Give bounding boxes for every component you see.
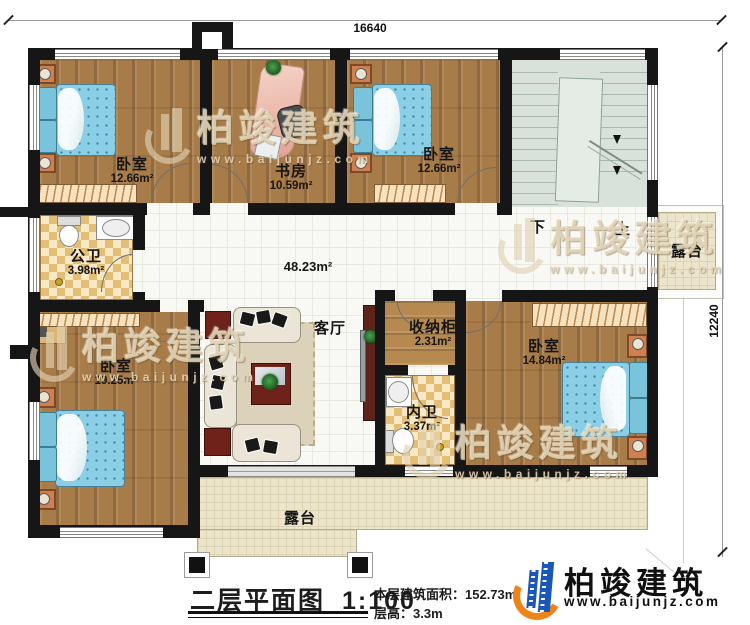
window xyxy=(29,218,40,292)
window xyxy=(560,49,645,60)
terrace-bottom-floor xyxy=(197,477,648,530)
room-label-ensuite-bath: 内卫 3.37m² xyxy=(382,404,462,434)
room-name: 卧室 xyxy=(76,358,156,375)
room-area: 3.98m² xyxy=(47,265,125,278)
plant-icon xyxy=(266,60,281,75)
hall-area-label: 48.23m² xyxy=(268,260,348,275)
window xyxy=(218,49,330,60)
window xyxy=(350,49,498,60)
window xyxy=(647,85,658,180)
wall xyxy=(375,290,385,465)
nightstand-icon xyxy=(350,153,372,173)
wall-stub xyxy=(10,345,28,359)
nightstand-icon xyxy=(627,334,648,358)
right-dimension-label: 12240 xyxy=(707,291,721,351)
room-label-public-bath: 公卫 3.98m² xyxy=(47,248,125,278)
window xyxy=(647,217,658,287)
side-table-icon xyxy=(205,311,231,339)
wall xyxy=(28,300,160,312)
room-label-bedroom-tl: 卧室 12.66m² xyxy=(92,156,172,186)
window xyxy=(60,527,163,538)
wall xyxy=(200,60,212,203)
bed-sheet xyxy=(374,88,400,150)
room-area: 10.59m² xyxy=(251,180,331,193)
top-dimension-label: 16640 xyxy=(340,21,400,35)
monitor-icon xyxy=(254,132,282,160)
floor-plan: 16640 12240 下 上 xyxy=(0,0,750,625)
stair-down-label: 下 xyxy=(530,216,545,237)
nightstand-icon xyxy=(627,436,648,460)
floor-drain-icon xyxy=(55,278,63,286)
plant-icon xyxy=(262,374,278,390)
room-area: 12.66m² xyxy=(399,163,479,176)
floor-height-text: 层高：3.3m xyxy=(374,603,443,622)
side-table-icon xyxy=(204,428,231,456)
chimney-flue xyxy=(202,32,222,49)
room-name: 卧室 xyxy=(92,156,172,173)
sofa-cushion xyxy=(208,394,224,411)
floor-area-text: 本层建筑面积：152.73m² xyxy=(374,584,521,603)
window xyxy=(590,466,627,477)
title-underline xyxy=(188,611,368,614)
terrace-bottom-floor-lower xyxy=(197,529,357,557)
wall xyxy=(133,203,145,250)
window xyxy=(29,402,40,460)
pillow-icon xyxy=(37,120,57,153)
wall xyxy=(335,60,347,203)
bed-sheet xyxy=(600,366,626,431)
pillow-icon xyxy=(629,362,649,398)
window xyxy=(55,49,180,60)
door-handle-icon xyxy=(436,443,444,451)
window xyxy=(405,466,453,476)
brand-url: www.baijunjz.com xyxy=(564,594,721,609)
frame-line xyxy=(683,297,684,563)
room-name: 书房 xyxy=(251,163,331,180)
wall xyxy=(502,290,658,302)
stair-up-label: 上 xyxy=(615,218,630,239)
room-label-terrace-right: 露台 xyxy=(662,243,712,260)
wall-stub xyxy=(0,207,28,217)
column-marker xyxy=(184,552,210,578)
pillow-icon xyxy=(353,120,373,153)
pillow-icon xyxy=(629,398,649,434)
room-label-bedroom-tr: 卧室 12.66m² xyxy=(399,146,479,176)
room-label-storage: 收纳柜 2.31m² xyxy=(394,319,472,349)
wall xyxy=(188,300,200,538)
sliding-door xyxy=(228,466,355,477)
sink-icon xyxy=(102,219,130,237)
bed-sheet xyxy=(57,414,87,481)
room-name: 卧室 xyxy=(504,338,584,355)
wall xyxy=(133,292,145,300)
wardrobe-icon xyxy=(36,313,140,327)
room-area: 19.25m² xyxy=(76,375,156,388)
room-area: 14.84m² xyxy=(504,355,584,368)
stair-arrow-icon xyxy=(613,135,621,144)
room-area: 3.37m² xyxy=(382,421,462,434)
wall xyxy=(497,203,512,215)
room-label-living: 客厅 xyxy=(300,320,360,337)
wardrobe-icon xyxy=(374,184,446,203)
wall xyxy=(193,203,210,215)
brand-logo-icon xyxy=(513,558,559,616)
room-name: 公卫 xyxy=(47,248,125,265)
room-label-bedroom-r: 卧室 14.84m² xyxy=(504,338,584,368)
room-area: 12.66m² xyxy=(92,173,172,186)
sofa-cushion xyxy=(262,439,279,455)
right-dimension-line xyxy=(722,47,723,557)
room-name: 收纳柜 xyxy=(394,319,472,336)
wall xyxy=(500,60,512,203)
wall xyxy=(455,290,466,465)
room-name: 卧室 xyxy=(399,146,479,163)
pillow-icon xyxy=(353,87,373,120)
pillow-icon xyxy=(37,87,57,120)
title-underline-thin xyxy=(188,617,368,618)
sink-icon xyxy=(388,381,409,403)
bed-sheet xyxy=(58,88,84,150)
stair-treads-left xyxy=(512,62,558,205)
wall xyxy=(28,203,147,215)
stair-treads-right xyxy=(600,62,647,172)
wardrobe-icon xyxy=(532,303,647,327)
nightstand-icon xyxy=(350,64,372,84)
wall xyxy=(248,203,455,215)
room-label-terrace-bottom: 露台 xyxy=(270,510,330,527)
window xyxy=(29,85,40,150)
stair-arrow-icon xyxy=(613,166,621,175)
room-label-study: 书房 10.59m² xyxy=(251,163,331,193)
stair-landing xyxy=(555,77,603,202)
room-label-bedroom-bl: 卧室 19.25m² xyxy=(76,358,156,388)
wardrobe-icon xyxy=(33,184,137,203)
column-marker xyxy=(347,552,373,578)
room-area: 2.31m² xyxy=(394,336,472,349)
room-name: 内卫 xyxy=(382,404,462,421)
